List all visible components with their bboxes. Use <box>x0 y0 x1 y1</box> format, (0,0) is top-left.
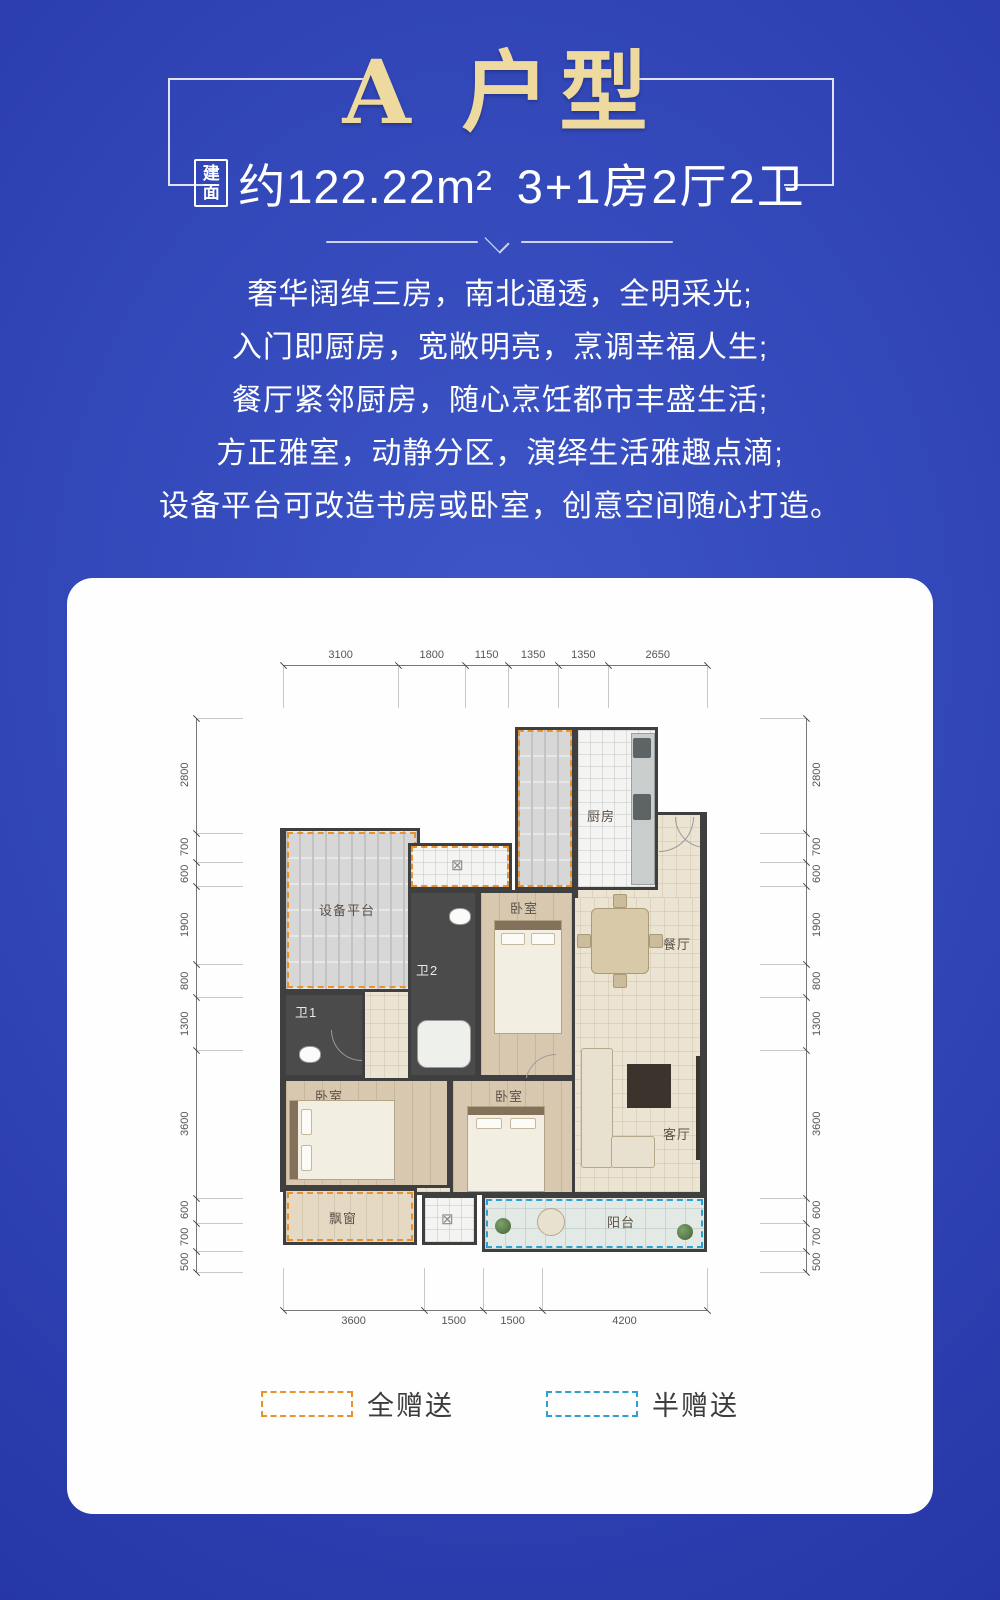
dim-witness-line <box>508 666 509 708</box>
full-gift-swatch <box>261 1391 353 1417</box>
dim-witness-line <box>760 1272 806 1273</box>
bathroom2-label: 卫2 <box>416 960 438 979</box>
balcony-label: 阳台 <box>607 1212 635 1231</box>
outer-wall-left-lower <box>280 992 286 1192</box>
poster-background: A 户型 建面 约122.22m² 3+1房2厅2卫 奢华阔绰三房，南北通透，全… <box>0 0 1000 1600</box>
dining-chair <box>613 894 627 908</box>
dim-witness-line <box>483 1268 484 1310</box>
area-value: 约122.22m² <box>238 148 493 217</box>
dim-witness-line <box>283 666 284 708</box>
kitchen-stove <box>633 794 651 820</box>
layout-value: 3+1房2厅2卫 <box>517 148 806 217</box>
dimension-value: 1300 <box>811 1002 824 1046</box>
pillow <box>510 1118 536 1129</box>
dim-witness-line <box>197 1272 243 1273</box>
dining-label: 餐厅 <box>663 934 691 953</box>
dining-chair <box>613 974 627 988</box>
sofa-chaise <box>611 1136 655 1168</box>
dimension-line <box>283 665 707 666</box>
intro-line: 餐厅紧邻厨房，随心烹饪都市丰盛生活; <box>0 374 1000 427</box>
dim-witness-line <box>283 1268 284 1310</box>
pillow <box>301 1109 312 1135</box>
bed <box>494 920 562 1034</box>
dimension-value: 500 <box>811 1240 824 1284</box>
divider-line-left <box>326 241 478 243</box>
dim-witness-line <box>558 666 559 708</box>
dimension-value: 1350 <box>561 649 605 661</box>
dimension-value: 3100 <box>319 649 363 661</box>
dim-witness-line <box>197 1050 243 1051</box>
dim-witness-line <box>707 666 708 708</box>
bathroom1-label: 卫1 <box>295 1002 317 1021</box>
outer-wall-right <box>700 815 707 1195</box>
dim-witness-line <box>760 1198 806 1199</box>
dim-witness-line <box>760 833 806 834</box>
divider-line-right <box>521 241 673 243</box>
dim-witness-line <box>760 886 806 887</box>
pillow <box>476 1118 502 1129</box>
bed <box>467 1106 545 1192</box>
dim-witness-line <box>760 718 806 719</box>
area-box-label: 建面 <box>194 159 228 207</box>
dimension-value: 1800 <box>410 649 454 661</box>
dimension-value: 600 <box>179 852 192 896</box>
dimension-value: 1300 <box>179 1002 192 1046</box>
balcony-chair <box>537 1208 565 1236</box>
dimension-value: 1150 <box>465 649 509 661</box>
half-gift-label: 半赠送 <box>652 1384 739 1423</box>
dining-table <box>591 908 649 974</box>
pillow <box>301 1145 312 1171</box>
dimension-value: 1500 <box>432 1315 476 1327</box>
dim-witness-line <box>760 1050 806 1051</box>
dim-witness-line <box>707 1268 708 1310</box>
dimension-line <box>283 1310 707 1311</box>
dimension-value: 3600 <box>332 1315 376 1327</box>
pillow <box>531 933 555 945</box>
dim-witness-line <box>197 1198 243 1199</box>
gifted-strip-overlay-full-gift <box>518 730 572 887</box>
dim-witness-line <box>608 666 609 708</box>
intro-line: 奢华阔绰三房，南北通透，全明采光; <box>0 268 1000 321</box>
half-gift-swatch <box>546 1391 638 1417</box>
dim-witness-line <box>465 666 466 708</box>
dim-witness-line <box>760 997 806 998</box>
dim-witness-line <box>197 1223 243 1224</box>
dim-witness-line <box>197 997 243 998</box>
plant <box>677 1224 693 1240</box>
dimension-value: 1500 <box>491 1315 535 1327</box>
dim-witness-line <box>197 833 243 834</box>
dim-witness-line <box>398 666 399 708</box>
bathtub <box>417 1020 471 1068</box>
dim-witness-line <box>197 718 243 719</box>
dim-witness-line <box>197 964 243 965</box>
pillow <box>501 933 525 945</box>
dim-witness-line <box>197 886 243 887</box>
dimension-value: 4200 <box>603 1315 647 1327</box>
dim-witness-line <box>197 1251 243 1252</box>
dim-witness-line <box>760 862 806 863</box>
cabinet-icon: ⊠ <box>451 856 464 874</box>
dim-witness-line <box>197 862 243 863</box>
dim-witness-line <box>760 1223 806 1224</box>
intro-line: 入门即厨房，宽敞明亮，烹调幸福人生; <box>0 321 1000 374</box>
bed-headboard <box>495 921 561 930</box>
gift-legend: 全赠送 半赠送 <box>67 1384 933 1423</box>
plant <box>495 1218 511 1234</box>
bedroom-top-label: 卧室 <box>510 898 538 917</box>
kitchen-sink <box>633 738 651 758</box>
dim-witness-line <box>760 964 806 965</box>
dimension-value: 1350 <box>511 649 555 661</box>
dimension-value: 2650 <box>636 649 680 661</box>
dining-chair <box>577 934 591 948</box>
dim-witness-line <box>424 1268 425 1310</box>
dim-witness-line <box>760 1251 806 1252</box>
dimension-value: 600 <box>811 852 824 896</box>
dimension-value: 1900 <box>179 903 192 947</box>
dimension-value: 800 <box>179 959 192 1003</box>
intro-line: 方正雅室，动静分区，演绎生活雅趣点滴; <box>0 427 1000 480</box>
kitchen-label: 厨房 <box>587 806 615 825</box>
dimension-value: 3600 <box>811 1102 824 1146</box>
toilet <box>299 1046 321 1063</box>
dimension-line <box>806 718 807 1272</box>
dimension-value: 500 <box>179 1240 192 1284</box>
equipment-platform-label: 设备平台 <box>319 900 375 919</box>
living-label: 客厅 <box>663 1124 691 1143</box>
dimension-value: 3600 <box>179 1102 192 1146</box>
bed-headboard <box>468 1107 544 1115</box>
area-row: 建面 约122.22m² 3+1房2厅2卫 <box>0 148 1000 217</box>
cabinet-icon: ⊠ <box>441 1210 454 1228</box>
dimension-line <box>196 718 197 1272</box>
bedroom-center-label: 卧室 <box>495 1086 523 1105</box>
dimension-value: 2800 <box>179 753 192 797</box>
toilet <box>449 908 471 925</box>
bed-headboard <box>290 1101 298 1179</box>
legend-item-half-gift: 半赠送 <box>546 1384 739 1423</box>
sofa <box>581 1048 613 1168</box>
bay-window-label: 飘窗 <box>329 1208 357 1227</box>
chevron-down-icon <box>484 228 509 253</box>
floorplan-card: 310018001150135013502650 360015001500420… <box>67 578 933 1514</box>
outer-wall-left-upper <box>280 828 286 992</box>
tv-rug <box>627 1064 671 1108</box>
balcony-overlay-half-gift <box>486 1199 703 1248</box>
dimension-value: 2800 <box>811 753 824 797</box>
legend-item-full-gift: 全赠送 <box>261 1384 454 1423</box>
dimension-value: 800 <box>811 959 824 1003</box>
intro-paragraph: 奢华阔绰三房，南北通透，全明采光; 入门即厨房，宽敞明亮，烹调幸福人生; 餐厅紧… <box>0 268 1000 533</box>
page-title: A 户型 <box>0 22 1000 149</box>
dimension-value: 1900 <box>811 903 824 947</box>
bed <box>289 1100 395 1180</box>
full-gift-label: 全赠送 <box>367 1384 454 1423</box>
intro-line: 设备平台可改造书房或卧室，创意空间随心打造。 <box>0 480 1000 533</box>
dining-chair <box>649 934 663 948</box>
dim-witness-line <box>542 1268 543 1310</box>
